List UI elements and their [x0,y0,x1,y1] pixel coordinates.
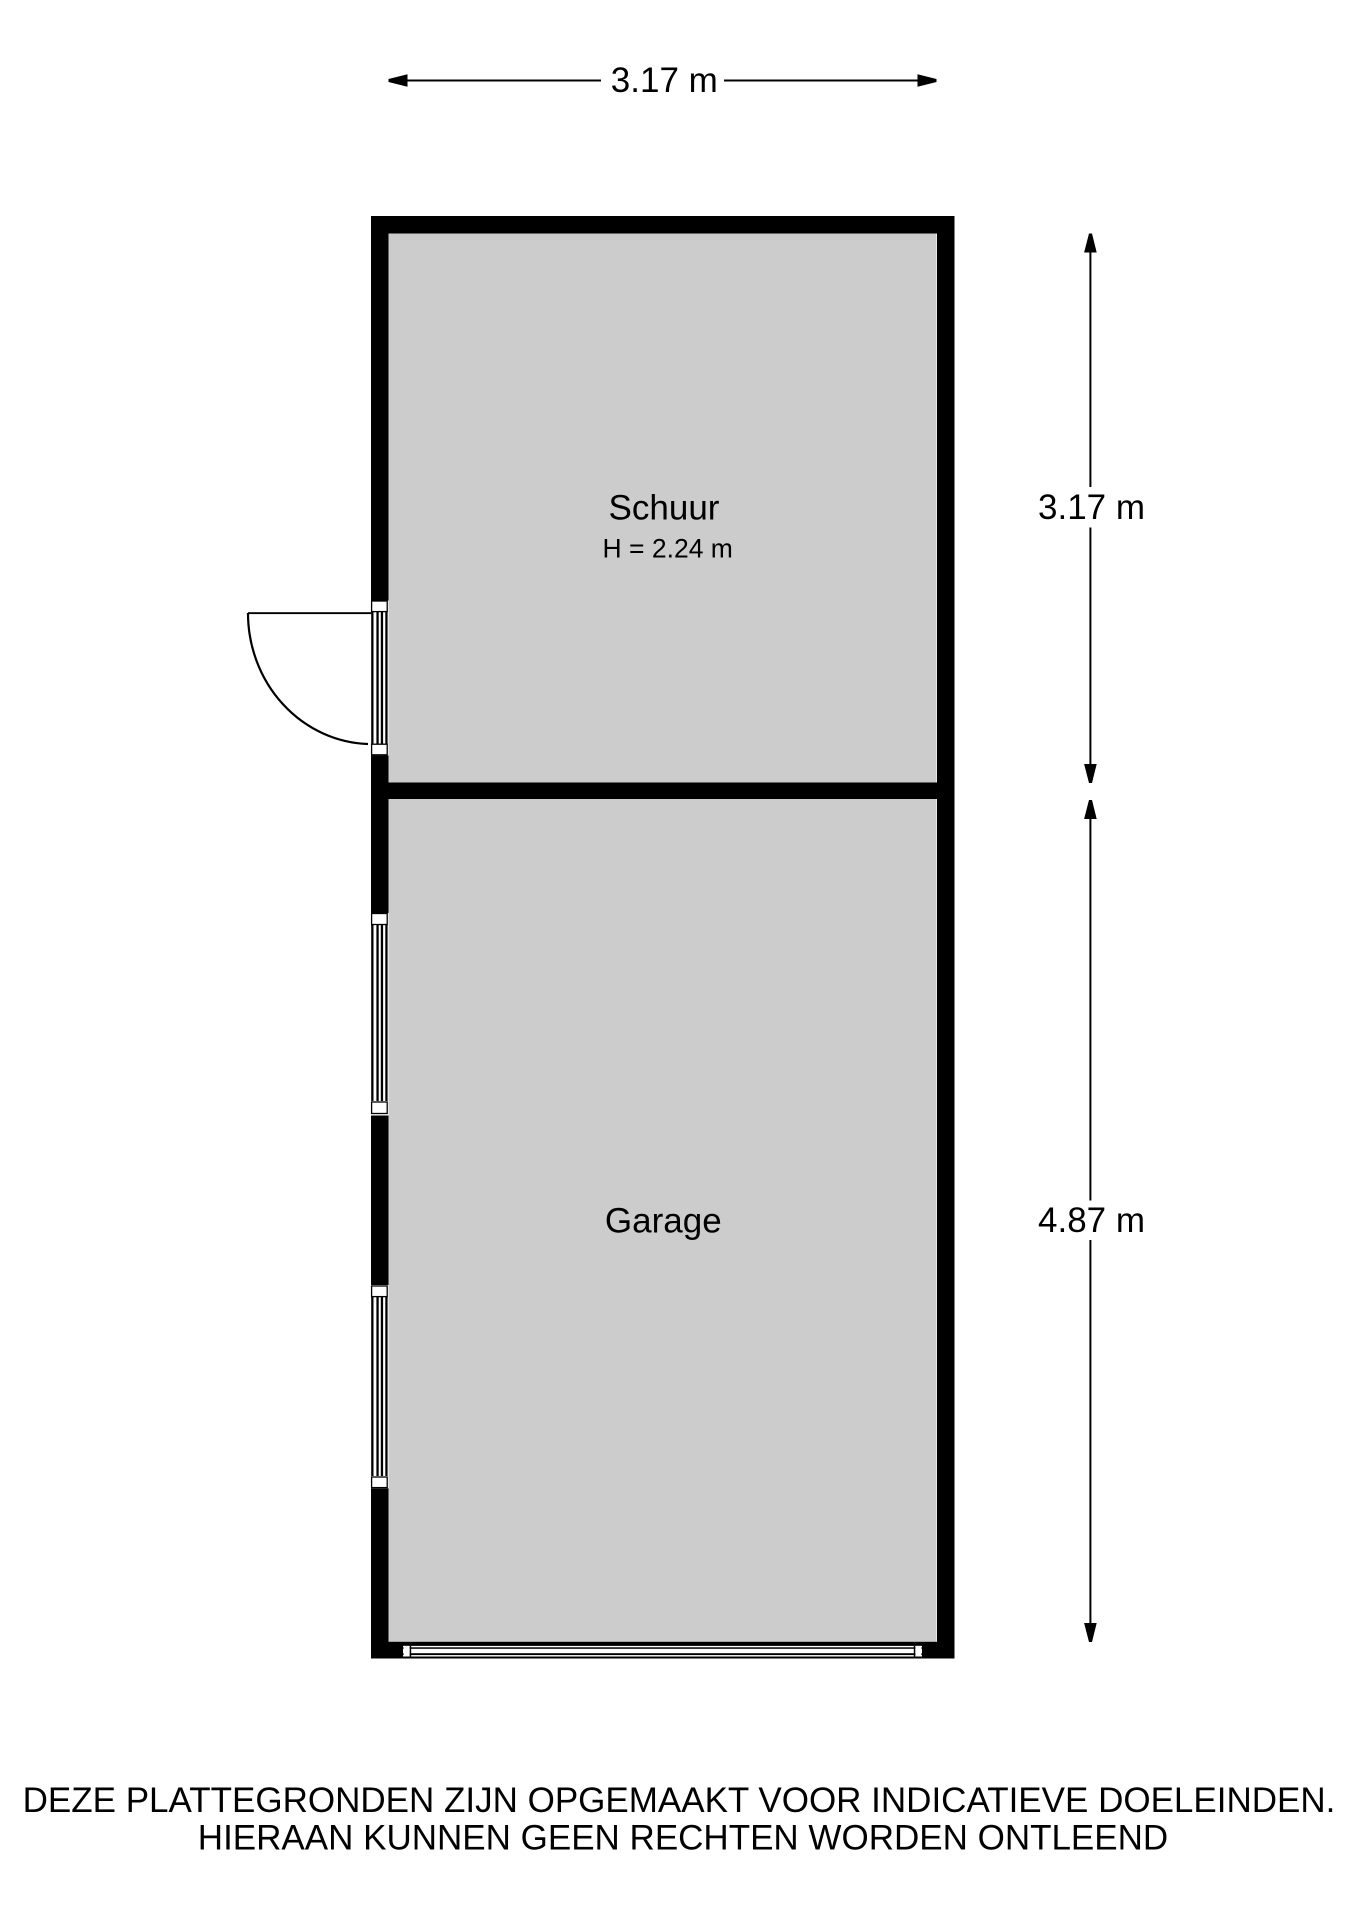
svg-text:Garage: Garage [605,1201,722,1240]
svg-text:H = 2.24 m: H = 2.24 m [603,534,733,564]
svg-text:Schuur: Schuur [609,488,720,527]
svg-text:3.17 m: 3.17 m [1038,488,1145,527]
svg-text:3.17 m: 3.17 m [611,61,718,100]
svg-text:4.87 m: 4.87 m [1038,1201,1145,1240]
svg-text:DEZE PLATTEGRONDEN ZIJN OPGEMA: DEZE PLATTEGRONDEN ZIJN OPGEMAAKT VOOR I… [23,1781,1336,1820]
svg-text:HIERAAN KUNNEN GEEN RECHTEN WO: HIERAAN KUNNEN GEEN RECHTEN WORDEN ONTLE… [198,1819,1168,1858]
